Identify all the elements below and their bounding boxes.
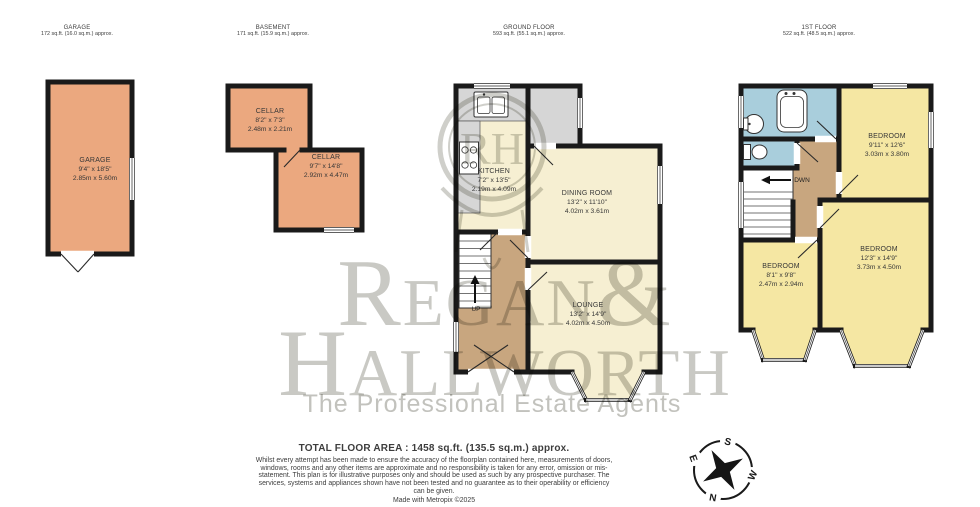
window xyxy=(324,228,354,233)
room-label-cellar-1: CELLAR 8'2" x 7'3" 2.48m x 2.21m xyxy=(215,108,325,134)
total-floor-area: TOTAL FLOOR AREA : 1458 sq.ft. (135.5 sq… xyxy=(134,443,734,454)
floor-caption-area: 593 sq.ft. (55.1 sq.m.) approx. xyxy=(469,31,589,37)
floor-caption-garage: GARAGE 172 sq.ft. (16.0 sq.m.) approx. xyxy=(17,25,137,37)
floor-caption-basement: BASEMENT 171 sq.ft. (15.9 sq.m.) approx. xyxy=(213,25,333,37)
stairs-down-label: DWN xyxy=(784,177,820,184)
floor-caption-area: 522 sq.ft. (48.5 sq.m.) approx. xyxy=(759,31,879,37)
floor-caption-first: 1ST FLOOR 522 sq.ft. (48.5 sq.m.) approx… xyxy=(759,25,879,37)
room-label-garage: GARAGE 9'4" x 18'5" 2.85m x 5.60m xyxy=(40,157,150,183)
floor-caption-area: 171 sq.ft. (15.9 sq.m.) approx. xyxy=(213,31,333,37)
garage-door xyxy=(61,254,94,272)
bathtub-icon xyxy=(777,90,807,132)
floor-caption-area: 172 sq.ft. (16.0 sq.m.) approx. xyxy=(17,31,137,37)
window xyxy=(658,166,663,204)
window xyxy=(578,98,583,128)
toilet-icon xyxy=(744,145,768,160)
room-label-cellar-2: CELLAR 9'7" x 14'8" 2.92m x 4.47m xyxy=(271,154,381,180)
crest-monogram: RH xyxy=(460,123,524,174)
room-label-bedroom-1: BEDROOM 9'11" x 12'6" 3.03m x 3.80m xyxy=(832,133,942,159)
disclaimer-text: Whilst every attempt has been made to en… xyxy=(253,457,615,496)
floorplan-page: GARAGE 172 sq.ft. (16.0 sq.m.) approx. B… xyxy=(0,0,980,507)
watermark-tagline: The Professional Estate Agents xyxy=(242,392,742,417)
room-label-dining-room: DINING ROOM 13'2" x 11'10" 4.02m x 3.61m xyxy=(532,190,642,216)
floor-caption-ground: GROUND FLOOR 593 sq.ft. (55.1 sq.m.) app… xyxy=(469,25,589,37)
window xyxy=(739,96,744,128)
stairs-up-label: UP xyxy=(461,306,491,313)
room-label-lounge: LOUNGE 13'2" x 14'9" 4.02m x 4.50m xyxy=(533,302,643,328)
footer: TOTAL FLOOR AREA : 1458 sq.ft. (135.5 sq… xyxy=(134,443,734,504)
window xyxy=(474,84,510,89)
window xyxy=(873,84,907,89)
credit-text: Made with Metropix ©2025 xyxy=(134,497,734,504)
window xyxy=(739,182,744,228)
room-label-bedroom-3: BEDROOM 8'1" x 9'8" 2.47m x 2.94m xyxy=(726,263,836,289)
room-label-bedroom-2: BEDROOM 12'3" x 14'9" 3.73m x 4.50m xyxy=(824,246,934,272)
first-floor-plan xyxy=(737,82,935,374)
